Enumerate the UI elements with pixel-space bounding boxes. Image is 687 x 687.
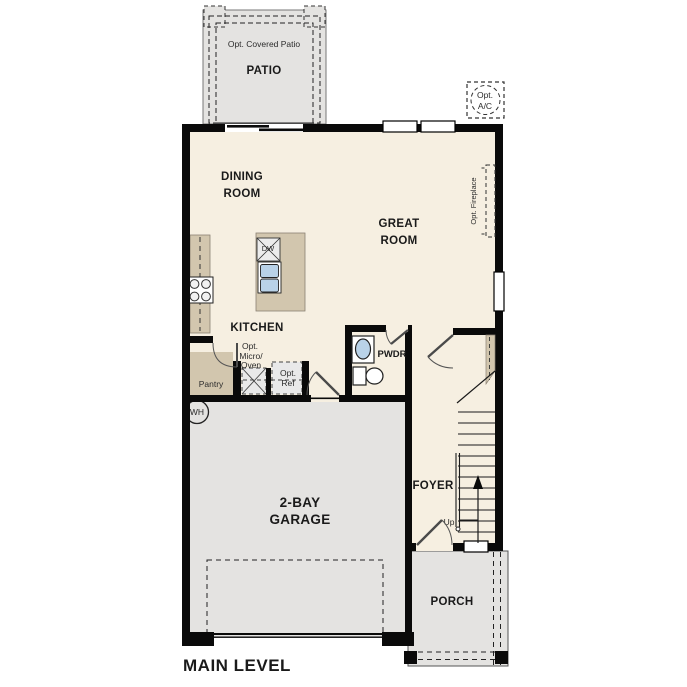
patio-area: Opt. Covered Patio PATIO [203, 6, 326, 124]
page-title: MAIN LEVEL [183, 656, 291, 675]
room-label-porch: PORCH [430, 596, 473, 608]
up-label: Up [444, 517, 455, 527]
wall-kitchen-stub [182, 336, 213, 343]
room-label-garage-2: GARAGE [269, 512, 330, 527]
wall-right [495, 124, 503, 551]
fireplace-label: Opt. Fireplace [469, 177, 478, 224]
room-label-great-1: GREAT [379, 218, 420, 230]
ac-label-2: A/C [478, 101, 492, 111]
sink-basin [261, 279, 279, 292]
ac-box [467, 82, 504, 118]
burner [190, 280, 199, 289]
wall-micro-divider [266, 368, 271, 395]
window-top-1 [383, 121, 417, 132]
dishwasher-label: DW [262, 244, 275, 253]
sliding-door-panel [259, 129, 303, 132]
wall-garage-top [182, 395, 412, 402]
porch-post [495, 651, 508, 664]
wall-pwdr-left [345, 325, 352, 395]
sliding-door-panel [227, 125, 269, 128]
floorplan-svg: Opt. Covered Patio PATIO Opt. A/C DW Pan… [0, 0, 687, 687]
room-label-patio: PATIO [247, 65, 282, 77]
garage-entry-threshold [311, 398, 339, 400]
sink-basin [261, 265, 279, 278]
pwdr-sink [356, 339, 371, 359]
room-label-kitchen: KITCHEN [230, 322, 283, 334]
wall-garage-right [405, 325, 412, 646]
covered-patio-label: Opt. Covered Patio [228, 39, 301, 49]
window-greatroom-right [494, 272, 504, 311]
room-label-dining-2: ROOM [224, 188, 261, 200]
ref-label-1: Opt. [280, 368, 296, 378]
room-label-dining-1: DINING [221, 171, 263, 183]
wall-garage-bottom-left [182, 632, 214, 646]
burner [202, 280, 211, 289]
opening-entry-door [416, 543, 453, 551]
garage-door-line [214, 637, 382, 638]
wall-garage-bottom-right [382, 632, 414, 646]
wall-ref-divider [302, 361, 309, 395]
room-label-foyer: FOYER [412, 480, 454, 492]
window-foyer [464, 541, 488, 552]
room-label-great-2: ROOM [381, 235, 418, 247]
toilet-tank [353, 367, 366, 385]
micro-label-1: Opt. [242, 341, 258, 351]
room-label-pwdr: PWDR [377, 349, 406, 360]
toilet-bowl [366, 368, 383, 384]
wall-stair-stub [453, 328, 495, 335]
burner [190, 292, 199, 301]
burner [202, 292, 211, 301]
floorplan-canvas: Opt. Covered Patio PATIO Opt. A/C DW Pan… [0, 0, 687, 687]
ac-label-1: Opt. [477, 90, 493, 100]
window-top-2 [421, 121, 455, 132]
water-heater-label: WH [190, 407, 204, 417]
wall-left [182, 124, 190, 646]
ref-label-2: Ref [281, 378, 295, 388]
opening-pwdr-door [386, 325, 408, 332]
room-label-pantry: Pantry [199, 379, 224, 389]
room-label-garage-1: 2-BAY [280, 495, 321, 510]
ac-unit-annotation: Opt. A/C [467, 82, 504, 118]
railing-newel [456, 527, 460, 531]
porch-post [404, 651, 417, 664]
micro-label-3: Oven [241, 360, 262, 370]
garage-door-line [214, 633, 382, 635]
